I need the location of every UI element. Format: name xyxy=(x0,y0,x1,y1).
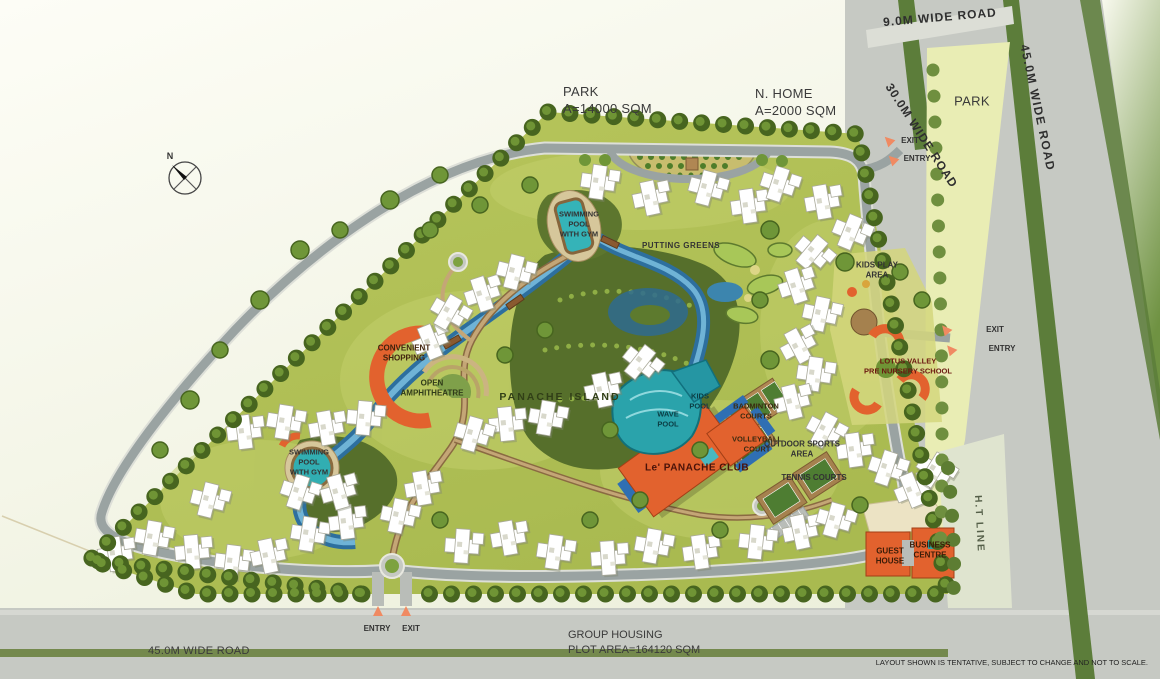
road-45m-bottom xyxy=(0,608,1160,679)
pond xyxy=(707,282,743,302)
entry-lane xyxy=(372,572,384,606)
site-plan: PARK A=14000 SQM N. HOME A=2000 SQM 9.0M… xyxy=(0,0,1160,679)
site-plan-drawing xyxy=(0,0,1160,679)
road-median xyxy=(0,649,948,657)
exit-lane xyxy=(400,572,412,606)
